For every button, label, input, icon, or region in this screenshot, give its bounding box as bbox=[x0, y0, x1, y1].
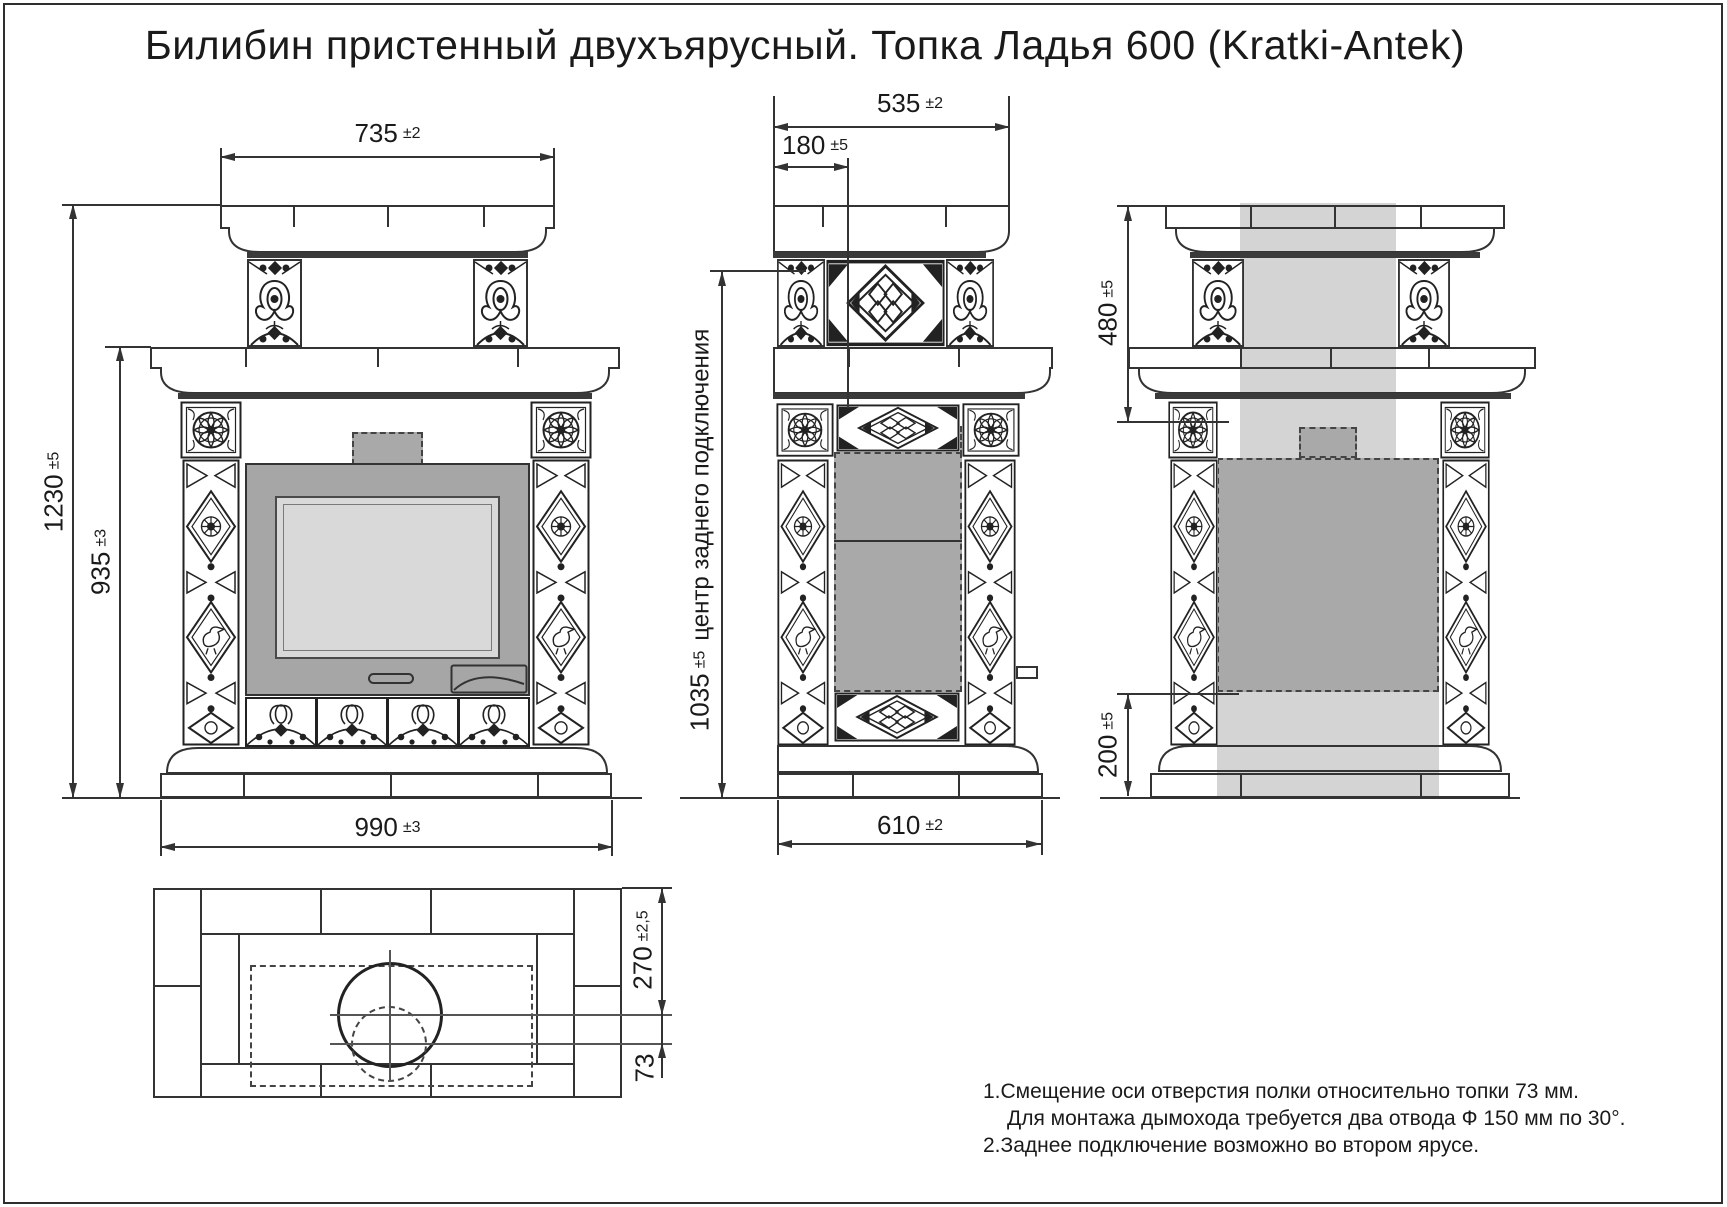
tulip-tile bbox=[946, 259, 994, 347]
centerline bbox=[389, 950, 391, 1082]
tile-joint bbox=[1428, 347, 1430, 369]
extension-line bbox=[1117, 421, 1229, 423]
tile-joint bbox=[822, 205, 824, 229]
rosette-tile bbox=[180, 401, 242, 459]
dimension-line bbox=[220, 156, 555, 158]
arrowhead bbox=[1124, 206, 1132, 221]
side-base-plinth bbox=[777, 773, 1043, 798]
tile-joint bbox=[243, 773, 245, 798]
extension-line bbox=[62, 204, 222, 206]
ornament-column bbox=[777, 459, 829, 746]
frieze-tile bbox=[387, 697, 459, 747]
arrowhead bbox=[1124, 781, 1132, 796]
dim-side-base-depth: 610±2 bbox=[830, 810, 990, 841]
arrowhead bbox=[773, 163, 788, 171]
arrowhead bbox=[658, 1000, 666, 1015]
front-base-plinth bbox=[160, 773, 612, 798]
tile-joint bbox=[293, 205, 295, 229]
ornament-column bbox=[1170, 459, 1218, 746]
dimension-line bbox=[1127, 206, 1129, 422]
front-top-shelf-molding bbox=[228, 227, 547, 254]
ornament-column bbox=[964, 459, 1016, 746]
dim-side-front-offset: 180±5 bbox=[765, 130, 865, 161]
diamond-panel-tile bbox=[836, 404, 960, 452]
tile-joint bbox=[1330, 347, 1332, 369]
tile-joint bbox=[1240, 773, 1242, 798]
arrowhead bbox=[116, 783, 124, 798]
tier-joint-line bbox=[834, 540, 962, 542]
frieze-tile bbox=[458, 697, 530, 747]
tile-joint bbox=[1334, 205, 1336, 229]
arrowhead bbox=[658, 888, 666, 903]
tile-joint bbox=[958, 347, 960, 369]
extension-line bbox=[847, 158, 849, 408]
arrowhead bbox=[834, 163, 849, 171]
arrowhead bbox=[1026, 840, 1041, 848]
front-lower-shelf bbox=[150, 347, 620, 369]
floor-line bbox=[680, 797, 1060, 799]
arrowhead bbox=[69, 783, 77, 798]
back-top-shelf-molding bbox=[1175, 227, 1495, 254]
arrowhead bbox=[69, 204, 77, 219]
arrowhead bbox=[220, 153, 235, 161]
frieze-tile bbox=[316, 697, 388, 747]
ornament-column bbox=[532, 459, 590, 746]
drawing-title: Билибин пристенный двухъярусный. Топка Л… bbox=[0, 22, 1610, 69]
rosette-tile bbox=[1168, 401, 1218, 459]
tile-joint bbox=[377, 347, 379, 369]
firebox-handle bbox=[368, 673, 414, 684]
tile-joint bbox=[245, 347, 247, 369]
notes-block: 1.Смещение оси отверстия полки относител… bbox=[983, 1078, 1625, 1159]
shelf-shadow-band bbox=[178, 393, 592, 399]
tile-joint bbox=[320, 890, 322, 933]
tile-joint bbox=[573, 890, 575, 1096]
tile-joint bbox=[517, 347, 519, 369]
side-firebox-outline bbox=[834, 452, 962, 692]
floor-line bbox=[1100, 797, 1520, 799]
arrowhead bbox=[598, 843, 613, 851]
tile-joint bbox=[1420, 205, 1422, 229]
dim-front-base-width: 990±3 bbox=[300, 812, 475, 843]
arrowhead bbox=[116, 346, 124, 361]
front-chimney-stub bbox=[352, 432, 423, 465]
tile-joint bbox=[430, 890, 432, 933]
firebox-glass-inner-line bbox=[283, 504, 492, 651]
arrowhead bbox=[1124, 694, 1132, 709]
diamond-panel-tile bbox=[826, 259, 945, 347]
note-line-1: 1.Смещение оси отверстия полки относител… bbox=[983, 1078, 1625, 1105]
back-base-molding bbox=[1158, 745, 1502, 772]
tile-joint bbox=[387, 205, 389, 229]
arrowhead bbox=[1124, 407, 1132, 422]
back-chimney-stub bbox=[1299, 427, 1357, 458]
ornament-column bbox=[182, 459, 240, 746]
centerline-leader bbox=[330, 1014, 672, 1016]
dim-front-top-width: 735±2 bbox=[300, 118, 475, 149]
dimension-line bbox=[661, 888, 663, 1015]
rosette-tile bbox=[962, 401, 1020, 459]
back-lower-shelf bbox=[1128, 347, 1536, 369]
shelf-shadow-band bbox=[247, 252, 528, 258]
tulip-tile bbox=[1192, 259, 1244, 347]
side-top-shelf bbox=[773, 205, 1010, 229]
dimension-line bbox=[119, 346, 121, 798]
arrowhead bbox=[718, 271, 726, 286]
tile-joint bbox=[537, 773, 539, 798]
side-base-molding bbox=[777, 745, 1039, 773]
tile-joint bbox=[390, 773, 392, 798]
tulip-tile bbox=[473, 259, 528, 347]
tile-joint bbox=[155, 985, 200, 987]
frieze-tile bbox=[245, 697, 317, 747]
front-base-molding bbox=[166, 747, 608, 774]
door-axis-pin bbox=[1016, 666, 1038, 679]
arrowhead bbox=[160, 843, 175, 851]
rosette-tile bbox=[776, 401, 834, 459]
dimension-line bbox=[773, 126, 1010, 128]
extension-line bbox=[1008, 96, 1010, 206]
front-lower-shelf-molding bbox=[160, 367, 610, 395]
shelf-shadow-band bbox=[773, 252, 986, 258]
tulip-tile bbox=[247, 259, 302, 347]
firebox-damper-lever bbox=[450, 664, 528, 694]
rosette-tile bbox=[530, 401, 592, 459]
side-top-shelf-molding bbox=[773, 227, 1010, 254]
dimension-line bbox=[160, 846, 613, 848]
rosette-tile bbox=[1440, 401, 1490, 459]
tile-joint bbox=[852, 773, 854, 798]
dimension-line bbox=[777, 843, 1043, 845]
dimension-line bbox=[72, 204, 74, 798]
tulip-tile bbox=[777, 259, 825, 347]
dim-side-top-depth: 535±2 bbox=[830, 88, 990, 119]
side-lower-shelf-molding bbox=[773, 367, 1051, 395]
tulip-tile bbox=[1398, 259, 1450, 347]
shelf-shadow-band bbox=[773, 393, 1025, 399]
tile-joint bbox=[1250, 205, 1252, 229]
note-line-3: 2.Заднее подключение возможно во втором … bbox=[983, 1132, 1625, 1159]
tile-joint bbox=[483, 205, 485, 229]
arrowhead bbox=[777, 840, 792, 848]
tile-joint bbox=[958, 773, 960, 798]
arrowhead bbox=[540, 153, 555, 161]
tile-joint bbox=[575, 985, 622, 987]
extension-line bbox=[1117, 693, 1239, 695]
shelf-shadow-band bbox=[1190, 252, 1480, 258]
note-line-2: Для монтажа дымохода требуется два отвод… bbox=[983, 1105, 1625, 1132]
tile-joint bbox=[945, 205, 947, 229]
dimension-line bbox=[721, 271, 723, 798]
centerline-leader bbox=[330, 1043, 672, 1045]
side-lower-shelf bbox=[773, 347, 1053, 369]
drawing-sheet: Билибин пристенный двухъярусный. Топка Л… bbox=[0, 0, 1727, 1207]
shelf-shadow-band bbox=[1155, 393, 1511, 399]
floor-line bbox=[62, 797, 642, 799]
tile-joint bbox=[200, 890, 202, 1096]
tile-joint bbox=[1240, 347, 1242, 369]
arrowhead bbox=[718, 783, 726, 798]
extension-line bbox=[105, 346, 151, 348]
back-lower-shelf-molding bbox=[1138, 367, 1526, 395]
arrowhead bbox=[995, 123, 1010, 131]
ornament-column bbox=[1442, 459, 1490, 746]
rear-connection-zone bbox=[1217, 458, 1439, 692]
back-base-plinth bbox=[1150, 773, 1510, 798]
tile-joint bbox=[1420, 773, 1422, 798]
diamond-panel-tile bbox=[834, 692, 960, 742]
extension-line bbox=[1041, 800, 1043, 855]
